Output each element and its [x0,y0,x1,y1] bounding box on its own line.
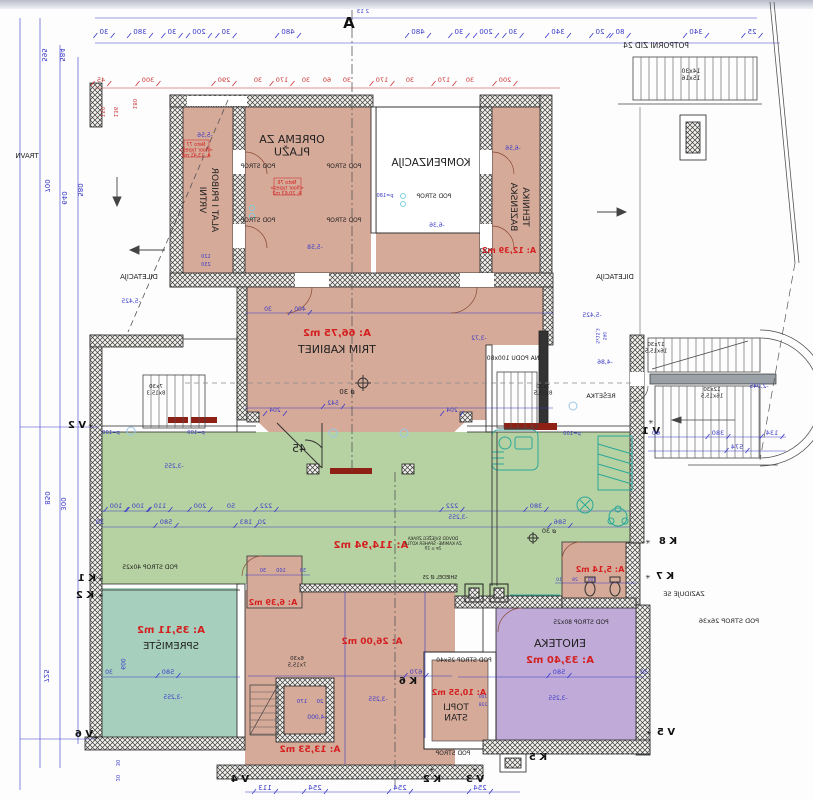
wall [247,412,259,422]
plan-label: ✳ [88,423,93,430]
dim-tick [745,448,749,453]
plan-label: ✳ [645,539,650,546]
property-line [770,2,795,263]
dim-tick [297,33,301,38]
plan-label: 200 [194,502,206,510]
threshold [168,417,188,423]
plan-label: 100 [276,568,286,574]
plan-label: -3,255 [163,694,183,701]
plan-label: 580 [160,518,172,526]
plan-label: 640 [60,191,68,204]
plan-label: 134 [766,429,778,437]
plan-label: 30 [260,568,266,574]
plan-label: 380 [530,502,542,510]
dim-tick [409,789,413,794]
angle-45: 45 [292,442,306,455]
door-gap [233,224,245,248]
plan-label: 580 [162,668,174,676]
dim-tick [780,434,784,439]
arrow-head [113,197,121,206]
plan-label: 590 [601,332,607,341]
plan-label: p=180 [377,193,394,199]
stairwell-inner [284,686,326,734]
plan-label: 595 [40,48,48,61]
plan-label: p=100 [187,430,205,436]
dim-tick [215,33,219,38]
arrow-head [672,417,681,423]
plan-label: 254 [473,784,487,792]
wall [85,737,245,750]
marker-v5: V 5 [657,727,675,738]
wall [483,608,496,652]
stair-round-cap [760,338,813,458]
area-vjetrobran: A: 6,39 m2 [249,598,298,607]
plan-label: 60 [652,429,660,437]
dim-tick [493,81,497,86]
dim-tick [208,33,212,38]
wall [307,464,319,474]
area-spremiste: A: 35,11 m2 [137,625,205,636]
plan-label: 700 [43,179,51,192]
plan-label: 28 [572,577,578,583]
plan-label: POD STROP [435,750,470,757]
vent-box-inner [469,588,479,598]
plan-label: 222 [446,502,458,510]
plan-label: -4,000 [307,714,327,721]
plan-label: 584 [58,48,66,62]
plan-label: -6,36 [429,222,445,229]
door-gap [460,273,494,287]
plan-label: 20 [114,775,120,781]
dim-tick [270,81,274,86]
dim-tick [387,789,391,794]
room-kompenzacija [376,107,480,233]
plan-label: 170 [376,76,388,84]
lawn-label: TRAVN [15,152,39,160]
area-terasa: A: 13,53 m2 [279,745,340,755]
room-bazenska-label: BAZENSKA [508,182,518,231]
plan-label: -5,58 [307,244,323,251]
dim-tick [473,33,477,38]
plan-label: 170 [276,76,288,84]
plan-label: 228 [479,702,488,708]
area-hodnik: A: 26,00 m2 [341,637,402,647]
plan-label: ✳ [237,767,242,774]
dim-tick [627,33,631,38]
room-spremiste-label: SPREMIŠTE [143,639,199,652]
plan-label: ALAT I PRIBOR [209,168,219,232]
area-topli: A: 10,55 m2 [432,688,486,697]
plan-label: 30 [509,28,518,36]
plan-label: ✳ [429,767,434,774]
stair-round-cap-outer [760,330,813,466]
dim-tick [502,33,506,38]
wall [237,584,245,737]
wall-window-gap [187,96,247,106]
dim-tick [370,81,374,86]
plan-label: 113 [258,784,271,792]
plan-label: 670 [410,668,422,676]
plan-label: 60 [323,76,331,84]
floorplan-page: A2 13POTPORNI ZID 24TRAVN303803020030480… [0,0,813,800]
stair-spec: 14x3015x16 [681,68,700,82]
plan-label: 230 [201,262,211,268]
plan-label: 30 [254,76,262,84]
plan-label: -3,255 [548,695,568,702]
wall [480,95,540,107]
stair-spec: 17x3016x15,5 [644,342,667,354]
plan-label: ø 30 [339,388,354,396]
dim-tick [232,81,236,86]
plan-label: TEHNIKA [520,187,530,228]
dim-tick [233,33,237,38]
door-gap [480,150,492,174]
plan-label: 30 [100,28,109,36]
dim-tick [161,33,165,38]
stair-rail [652,341,748,369]
dim-tick [274,789,278,794]
dim-tick [275,33,279,38]
plan-label: -5,425 [121,298,141,305]
stair-treads [656,338,752,372]
area-bazenska: A: 12,39 m2 [482,246,536,255]
plan-label: 170 [438,76,450,84]
marker-v4: V 4 [231,774,249,785]
dim-tick [179,33,183,38]
plan-label: 20 [596,28,605,36]
plan-label: NA PODU 100x80 [487,355,540,362]
area-wellness: A: 114,94 m2 [334,540,409,551]
plan-label: 30 [168,28,177,36]
marker-k5: K 5 [529,752,547,763]
dim-tick [427,33,431,38]
wall [233,107,245,273]
plan-label: 200 [192,28,205,36]
stair-treads [504,372,532,428]
marker-k2b: K 2 [423,774,441,785]
wall [540,95,552,287]
dim-tick [290,81,294,86]
plan-label: p=100 [102,430,120,436]
plan-label: POD STROP [240,163,275,170]
plan-label: 580 [553,668,565,676]
dim-tick [705,33,709,38]
plan-label: 30 [300,568,306,574]
marker-k6: K 6 [399,676,417,687]
dim-tick [136,81,140,86]
retaining-wall-label: POTPORNI ZID 24 [623,41,689,50]
plan-label: 150 [99,106,105,117]
room-topli-stan [432,660,488,741]
plan-label: ✳ [98,576,103,583]
plan-label: 380 [712,429,724,437]
area-enoteka: A: 33,40 m2 [526,655,594,666]
plan-label: 30 [640,669,648,676]
plan-label: 600 [119,658,126,670]
plan-label: 170 [296,699,307,705]
dim-tick [448,33,452,38]
dim-tick [93,33,97,38]
wall [90,335,102,737]
dim-tick [186,33,190,38]
plan-label: 254 [393,784,407,792]
dim-tick [324,789,328,794]
wall [170,273,553,287]
door-gap [233,150,245,174]
marker-k1: K 1 [78,573,96,584]
dim-tick [156,81,160,86]
plan-label: 340 [689,28,702,36]
plan-label: POD STROP [240,217,275,224]
protrusion-hatch [505,758,521,768]
arrow-head [130,246,139,254]
plan-label: -4,86 [597,359,613,366]
plan-label: 80 [616,28,625,36]
plan-label: 50 [227,502,235,510]
plan-label: 30 [105,669,113,676]
wall-block [90,83,102,127]
plan-label: 480 [281,28,294,36]
plan-label: -2,045 [749,383,769,390]
plan-label: 300 [142,76,154,84]
dim-tick [706,434,710,439]
plan-label: 380 [133,28,146,36]
plan-label: 30 [455,28,464,36]
stair-spec: 7x308x15,3 [146,384,166,396]
vent-box-inner [494,588,504,598]
plan-label: ✳ [93,735,98,742]
dim-tick [513,81,517,86]
plan-label: -3,255 [164,463,184,470]
fixture-circle [569,402,577,410]
threshold [504,423,557,430]
arrow-head [617,208,626,216]
stair-run [497,372,537,428]
plan-label: 30 [264,306,272,313]
plan-label: POD STROP 40x25 [122,564,178,571]
wall [402,464,414,474]
plan-label: 542 [327,400,339,407]
plan-label: 300 [59,497,67,510]
plan-label: 110 [154,502,166,510]
plan-label: 574 [731,443,743,451]
plan-label: 5x15,3 [594,328,600,344]
plan-label: 10 [556,577,562,583]
marker-v2: V 2 [68,420,86,431]
dim-tick [107,81,111,86]
plan-label: POD STROP [326,163,361,170]
plan-label: POD STROP [326,217,361,224]
wall [562,598,636,608]
dim-tick [466,33,470,38]
plan-label: 30 [114,760,120,766]
dim-tick [495,33,499,38]
plan-label: 100 [479,694,488,700]
plan-label: 120 [201,254,211,260]
plan-label: 204 [269,407,281,414]
plan-label: REŠETKA [586,391,616,400]
plan-label: ✳ [646,730,651,737]
plan-label: 222 [260,502,272,510]
plan-label: 204 [446,407,458,414]
dim-tick [589,33,593,38]
room-topli-label: TOPLISTAN [443,703,470,723]
plan-label: DILETACIJA [596,273,634,281]
dim-tick [759,33,763,38]
wall-solid [539,331,548,423]
section-a-marker: A [343,14,355,32]
threshold [330,468,372,474]
plan-label: ZAZIDUJE SE [663,590,704,598]
plan-label: 183 [240,518,252,526]
plan-label: -3,255 [368,696,388,703]
plan-label: 30 [466,76,474,84]
plan-label: 20 [316,699,323,705]
marker-k7: K 7 [656,571,674,582]
door-gap [630,372,644,386]
plan-label: 2 13 [356,9,369,15]
plan-label: 200 [588,577,597,583]
plan-label: 400 [294,306,306,313]
wall [90,335,183,347]
room-enoteka-label: ENOTEKA [534,637,587,650]
plan-label: 100 [110,502,122,510]
plan-label: SHIEDEL Ø 25 [423,574,458,581]
plan-label: -5,56 [197,132,213,139]
threshold [191,417,217,423]
dim-tick [545,33,549,38]
wall [626,543,640,605]
wall [237,287,247,420]
plan-label: POD STROP 26x36 [699,617,759,625]
dim-tick [405,33,409,38]
plan-label: DILETACIJA [120,273,158,281]
property-line [774,2,799,263]
plan-label: ✳ [648,419,653,426]
plan-label: ø 30 [542,527,556,535]
wall [483,740,650,754]
wall [217,765,483,779]
door-gap [480,224,492,248]
plan-label: 30 [343,76,351,84]
dim-tick [683,33,687,38]
dim-tick [452,81,456,86]
plan-label: -3,72 [471,335,487,342]
pillar-hatch [686,122,700,153]
plan-label: 725 [42,669,50,682]
plan-label: 25 [748,28,757,36]
plan-label: POD STROP 25x40 [436,657,492,664]
stair-spec: 7x308x15,5 [533,384,553,396]
plan-label: 45 [97,76,105,84]
plan-label: 254 [308,784,322,792]
stair-spec: 12x3016x15,5 [700,387,723,399]
dim-tick [567,33,571,38]
marker-k8: K 8 [659,536,677,547]
floor-plan-drawing: A2 13POTPORNI ZID 24TRAVN303803020030480… [0,0,813,800]
plan-label: 180 [131,98,137,109]
plan-label: 200 [499,76,511,84]
dim-tick [520,33,524,38]
wall [371,107,376,233]
plan-label: -6,56 [505,145,521,152]
door-gap [295,273,329,287]
dim-tick [127,33,131,38]
marker-v6: V 6 [75,729,93,740]
plan-label: 200 [479,28,492,36]
plan-label: 340 [551,28,564,36]
dim-tick [111,33,115,38]
plan-label: 100 [132,502,144,510]
plan-label: ✳ [645,574,650,581]
plan-label: -5,425 [582,312,602,319]
plan-label: 850 [43,491,51,504]
area-trim: A: 66,75 m2 [303,328,371,339]
plan-label: POD STROP 80x25 [553,619,609,626]
wall [170,95,183,287]
plan-label: 480 [411,28,424,36]
dim-tick [489,789,493,794]
plan-label: 136 [112,106,118,117]
dim-tick [432,81,436,86]
area-wc: A: 5,14 m2 [576,565,625,574]
plan-label: -3,255 [448,514,468,521]
dim-tick [302,789,306,794]
plan-label: 20 [258,518,266,526]
dim-tick [741,33,745,38]
room-kompenzacija-label: KOMPENZACIJA [391,157,471,169]
plan-label: 290 [218,76,230,84]
plan-label: 580 [76,183,84,196]
dim-tick [390,81,394,86]
plan-label: 30 [222,28,231,36]
plan-label: 586 [554,518,566,526]
plan-label: 30 [96,518,104,526]
marker-k2: K 2 [76,590,94,601]
plan-label: 30 [406,76,414,84]
plan-label: ✳ [98,593,103,600]
dim-tick [149,33,153,38]
room-wellness [102,432,630,596]
room-vrtni-label: VRTNI [197,187,207,214]
room-below-komp [376,233,480,273]
plan-label: POD STROP [416,193,451,200]
wall [300,584,457,592]
dim-tick [467,789,471,794]
dim-tick [252,789,256,794]
dim-tick [725,448,729,453]
plan-label: ✳ [472,767,477,774]
plan-label: 30 [302,76,310,84]
room-trim-label: TRIM KABINET [298,343,377,356]
plan-label: p=100 [563,431,581,437]
dim-tick [212,81,216,86]
